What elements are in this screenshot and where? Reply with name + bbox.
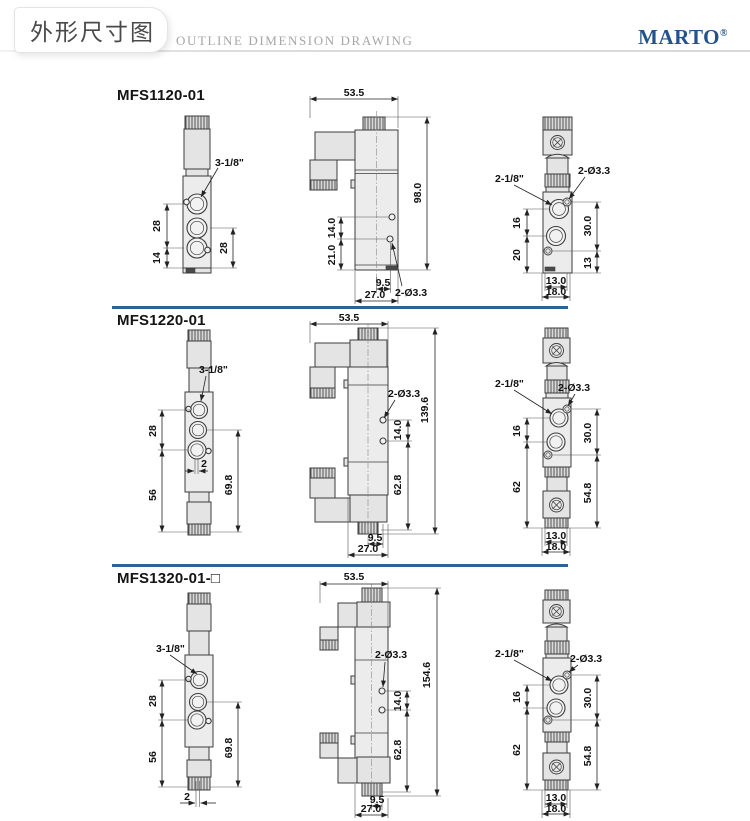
hole-callout: 2-Ø3.3: [578, 165, 610, 177]
model-title-mfs1120: MFS1120-01: [117, 87, 205, 104]
screw-hole: [544, 716, 552, 724]
solenoid-cap: [362, 588, 382, 602]
dim-label: 30.0: [582, 423, 594, 444]
mount-hole: [389, 214, 395, 220]
dim-label: 14.0: [392, 691, 404, 712]
dim-label: 14.0: [392, 420, 404, 441]
dim-label: 28: [147, 425, 159, 437]
dim-label: 18.0: [546, 803, 567, 815]
connector-arm: [338, 603, 357, 627]
solenoid-cap: [545, 590, 568, 600]
dim-label: 154.6: [421, 662, 433, 688]
pilot-hole: [186, 676, 191, 681]
solenoid-cap: [543, 117, 572, 130]
solenoid-cap: [545, 328, 568, 338]
mfs1220-front-view: 28 56 69.8 2 3-1/8": [140, 325, 270, 557]
dim-label: 54.8: [582, 483, 594, 504]
pilot-hole: [206, 718, 211, 723]
dim-label: 53.5: [339, 312, 360, 324]
section-divider: [112, 306, 568, 309]
dim-label: 21.0: [326, 245, 338, 266]
dim-label: 28: [147, 695, 159, 707]
connector-plug: [310, 180, 337, 190]
screw-hole: [544, 451, 552, 459]
mfs1220-side-view: 53.5 139.6 14.0 62.8 9.5 27.0 2-Ø3.3: [295, 310, 470, 565]
mount-nut: [545, 467, 569, 477]
mfs1320-front-view: 28 56 69.8 2 3-1/8": [140, 585, 270, 820]
mount-hole: [379, 688, 385, 694]
mfs1320-back-view: 16 62 30.0 54.8 13.0 18.0 2-1/8" 2-Ø3.3: [490, 580, 665, 821]
valve-outline: [543, 117, 572, 273]
dim-label: 30.0: [582, 688, 594, 709]
dim-label: 2: [201, 458, 207, 470]
page: 外形尺寸图 OUTLINE DIMENSION DRAWING MARTO® M…: [0, 0, 750, 821]
brand-logo: MARTO®: [638, 25, 728, 50]
port-callout: 2-1/8": [495, 378, 524, 390]
solenoid-cap: [185, 116, 209, 129]
dim-label: 14.0: [326, 218, 338, 239]
dim-label: 20: [511, 249, 523, 261]
dim-label: 62.8: [392, 475, 404, 496]
connector-arm: [315, 132, 355, 160]
dim-label: 16: [511, 691, 523, 703]
dim-label: 18.0: [546, 286, 567, 298]
dim-label: 62: [511, 481, 523, 493]
connector-plug: [310, 388, 335, 398]
hole-callout: 2-Ø3.3: [395, 287, 427, 299]
port-callout: 2-1/8": [495, 173, 524, 185]
screw-hole: [563, 405, 571, 413]
hole-callout: 2-Ø3.3: [375, 649, 407, 661]
mfs1220-back-view: 16 62 30.0 54.8 13.0 18.0 2-1/8" 2-Ø3.3: [490, 315, 665, 565]
connector-arm: [338, 758, 357, 783]
dim-label: 139.6: [419, 397, 431, 423]
connector-plug: [320, 640, 338, 650]
dim-label: 18.0: [546, 541, 567, 553]
solenoid-cap: [188, 593, 210, 604]
screw-hole: [563, 198, 571, 206]
dim-label: 62.8: [392, 740, 404, 761]
dim-label: 27.0: [361, 803, 382, 815]
screw-hole: [563, 671, 571, 679]
dim-label: 30.0: [582, 216, 594, 237]
dim-label: 27.0: [358, 543, 379, 555]
page-title-tab: 外形尺寸图: [14, 7, 168, 53]
valve-outline: [185, 330, 213, 535]
connector-arm: [315, 343, 350, 367]
valve-outline: [310, 111, 398, 280]
port-callout: 3-1/8": [156, 643, 185, 655]
solenoid-cap: [188, 777, 210, 790]
dim-label: 16: [511, 425, 523, 437]
dim-label: 2: [184, 791, 190, 803]
brand-name: MARTO: [638, 25, 720, 49]
mount-nut: [545, 174, 570, 187]
dim-label: 69.8: [223, 475, 235, 496]
hole-callout: 2-Ø3.3: [388, 388, 420, 400]
valve-outline: [185, 593, 213, 790]
dim-label: 27.0: [365, 289, 386, 301]
hole-callout: 2-Ø3.3: [558, 382, 590, 394]
mfs1320-side-view: 53.5 154.6 14.0 62.8 9.5 27.0 2-Ø3.3: [295, 570, 470, 820]
mfs1120-front-view: 28 14 28 3-1/8": [140, 110, 270, 295]
port-callout: 3-1/8": [199, 364, 228, 376]
connector-plug: [320, 733, 338, 743]
valve-outline: [543, 328, 571, 528]
valve-outline: [310, 324, 388, 542]
dim-label: 56: [147, 751, 159, 763]
solenoid-cap: [188, 330, 210, 341]
dim-label: 56: [147, 489, 159, 501]
hole-callout: 2-Ø3.3: [570, 653, 602, 665]
dim-label: 16: [511, 217, 523, 229]
section-divider: [112, 564, 568, 567]
dim-label: 62: [511, 744, 523, 756]
mount-hole: [387, 236, 393, 242]
mount-hole: [380, 417, 386, 423]
dim-label: 9.5: [376, 277, 391, 289]
dim-label: 54.8: [582, 746, 594, 767]
connector-plug: [310, 468, 335, 478]
dim-label: 53.5: [344, 571, 365, 583]
dim-label: 14: [151, 252, 163, 264]
pilot-hole: [205, 247, 211, 253]
screw-hole: [544, 247, 552, 255]
valve-outline: [320, 584, 390, 804]
solenoid-cap: [545, 780, 568, 790]
solenoid-cap: [188, 524, 210, 535]
port-callout: 2-1/8": [495, 648, 524, 660]
port-callout: 3-1/8": [215, 157, 244, 169]
mount-nut: [545, 732, 569, 742]
pilot-hole: [206, 448, 211, 453]
dim-label: 53.5: [344, 87, 365, 99]
dim-label: 28: [151, 220, 163, 232]
mfs1120-side-view: 53.5 98.0 14.0 21.0 9.5 27.0 2-Ø3.3: [295, 85, 470, 305]
dim-label: 69.8: [223, 738, 235, 759]
page-title-chinese: 外形尺寸图: [15, 13, 155, 47]
dim-label: 98.0: [412, 183, 424, 204]
registered-mark: ®: [720, 28, 728, 39]
pilot-hole: [186, 406, 191, 411]
pilot-hole: [184, 199, 190, 205]
dim-label: 28: [218, 242, 230, 254]
connector-arm: [315, 498, 350, 522]
solenoid-cap: [363, 117, 385, 130]
page-title-english: OUTLINE DIMENSION DRAWING: [176, 33, 414, 49]
mfs1120-back-view: 16 20 30.0 13 13.0 18.0 2-1/8" 2-Ø3.3: [490, 105, 665, 303]
mount-nut: [545, 641, 569, 654]
solenoid-cap: [545, 518, 568, 528]
valve-outline: [183, 116, 211, 273]
mount-hole: [379, 707, 385, 713]
dim-label: 13: [582, 257, 594, 269]
valve-outline: [543, 590, 571, 790]
mount-hole: [380, 438, 386, 444]
